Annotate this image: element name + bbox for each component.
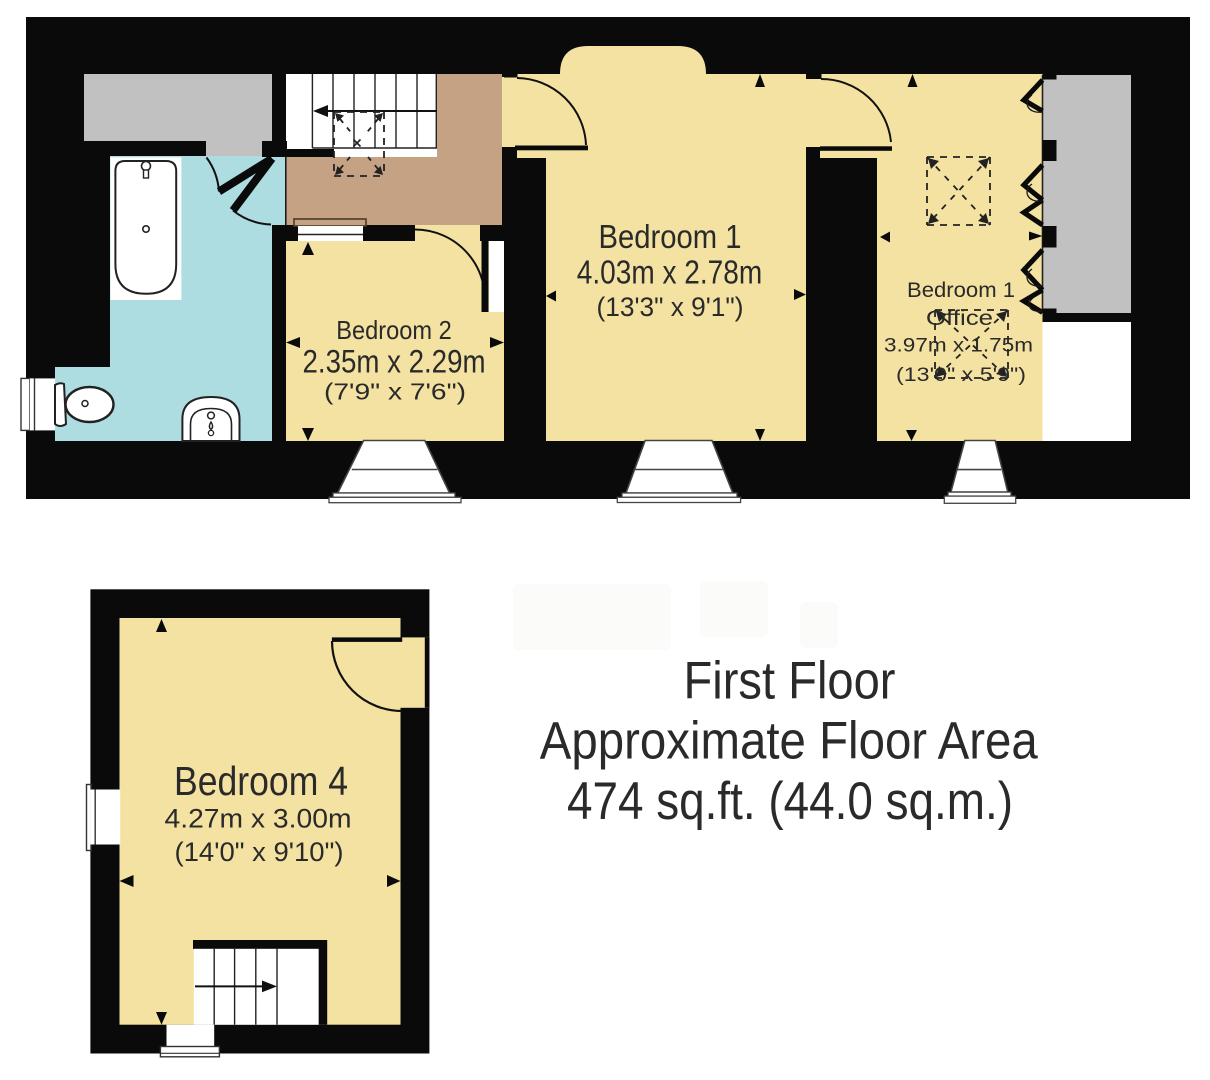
svg-text:(7'9" x 7'6"): (7'9" x 7'6")	[324, 379, 466, 405]
svg-text:3.97m x 1.75m: 3.97m x 1.75m	[884, 335, 1033, 357]
svg-text:474 sq.ft. (44.0 sq.m.): 474 sq.ft. (44.0 sq.m.)	[567, 772, 1013, 831]
svg-text:Approximate Floor Area: Approximate Floor Area	[540, 712, 1039, 771]
svg-text:Bedroom 2: Bedroom 2	[336, 315, 452, 345]
svg-text:4.27m x 3.00m: 4.27m x 3.00m	[165, 804, 352, 834]
svg-text:4.03m x 2.78m: 4.03m x 2.78m	[577, 254, 763, 291]
svg-text:First Floor: First Floor	[684, 652, 896, 711]
svg-text:Bedroom 1: Bedroom 1	[599, 218, 742, 255]
svg-text:2.35m x 2.29m: 2.35m x 2.29m	[303, 344, 486, 380]
svg-text:Bedroom 4: Bedroom 4	[174, 758, 348, 804]
svg-text:(13'3" x 9'1"): (13'3" x 9'1")	[597, 292, 744, 322]
svg-text:(14'0" x 9'10"): (14'0" x 9'10")	[175, 837, 344, 867]
svg-text:Office: Office	[926, 307, 993, 330]
svg-text:Bedroom 1: Bedroom 1	[907, 279, 1015, 302]
svg-text:(13'0" x 5'9"): (13'0" x 5'9")	[896, 364, 1026, 386]
